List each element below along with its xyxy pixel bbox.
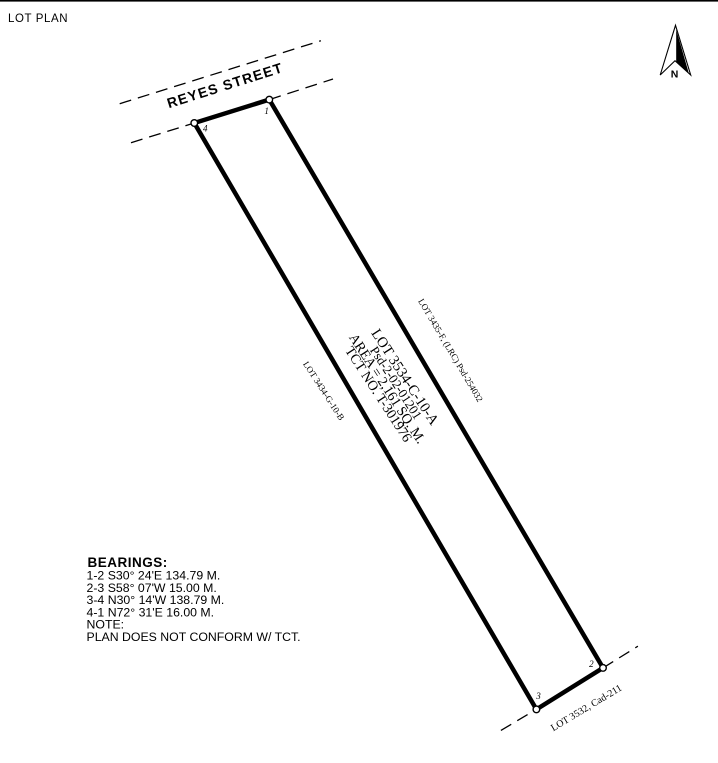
svg-text:PLAN DOES NOT CONFORM W/ TCT.: PLAN DOES NOT CONFORM W/ TCT. bbox=[87, 630, 301, 644]
svg-text:1: 1 bbox=[264, 106, 269, 116]
svg-text:LOT PLAN: LOT PLAN bbox=[8, 13, 68, 25]
svg-text:N: N bbox=[671, 69, 679, 81]
svg-text:2: 2 bbox=[589, 659, 594, 669]
svg-text:4: 4 bbox=[203, 124, 208, 134]
svg-text:3: 3 bbox=[535, 691, 541, 701]
